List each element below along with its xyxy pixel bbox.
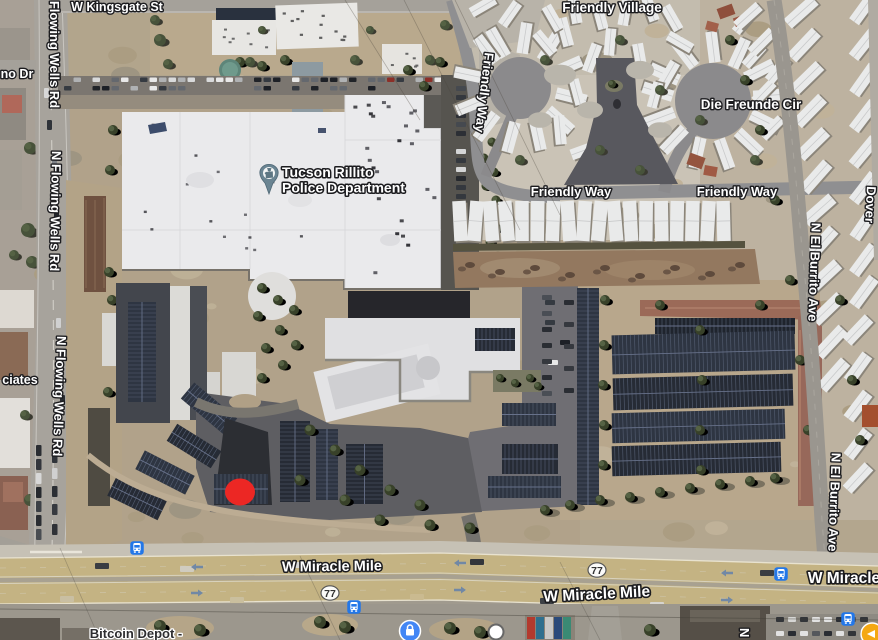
svg-text:no Dr: no Dr: [1, 67, 34, 81]
svg-text:W Miracle: W Miracle: [808, 570, 878, 587]
svg-text:77: 77: [324, 588, 336, 600]
svg-text:Bitcoin Depot -: Bitcoin Depot -: [90, 626, 182, 640]
svg-text:W Kingsgate St: W Kingsgate St: [71, 0, 164, 14]
svg-text:N Flowing Wells Rd: N Flowing Wells Rd: [47, 151, 64, 272]
svg-text:W Miracle Mile: W Miracle Mile: [282, 558, 382, 575]
svg-text:Police Department: Police Department: [282, 180, 405, 196]
svg-text:Die Freunde Cir: Die Freunde Cir: [701, 97, 802, 112]
svg-text:77: 77: [591, 565, 603, 577]
svg-text:Friendly Way: Friendly Way: [697, 184, 778, 199]
svg-text:N El Burrito Ave: N El Burrito Ave: [737, 628, 752, 640]
svg-text:Dover: Dover: [862, 186, 878, 224]
svg-text:Friendly Village: Friendly Village: [562, 0, 662, 15]
svg-text:Friendly Way: Friendly Way: [531, 184, 612, 199]
svg-text:ciates: ciates: [2, 373, 37, 387]
svg-text:N Flowing Wells Rd: N Flowing Wells Rd: [47, 0, 62, 108]
svg-text:Tucson Rillito: Tucson Rillito: [282, 164, 374, 180]
